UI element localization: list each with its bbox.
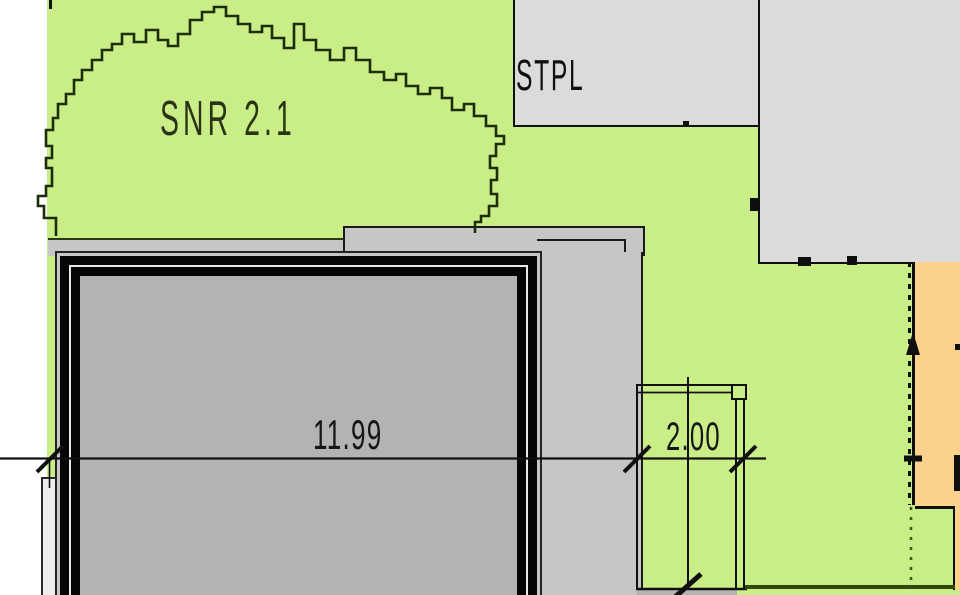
orange-area — [915, 262, 960, 509]
site-plan: SNR 2.1 STPL 11.99 2.00 — [0, 0, 960, 595]
main-building — [55, 251, 542, 595]
building-outer-wall — [60, 256, 537, 595]
orange-area-lower-strip — [953, 506, 960, 590]
neighbor-parcel-area — [758, 0, 960, 264]
area-label: SNR 2.1 — [160, 95, 296, 144]
parking-label: STPL — [516, 54, 584, 98]
building-inner-wall — [71, 267, 526, 595]
annex-strip — [537, 239, 626, 595]
dimension-label-main: 11.99 — [313, 414, 382, 456]
lower-structure-edge — [637, 590, 737, 595]
annex-edge-strip — [624, 252, 643, 595]
dimension-label-side: 2.00 — [666, 417, 721, 457]
